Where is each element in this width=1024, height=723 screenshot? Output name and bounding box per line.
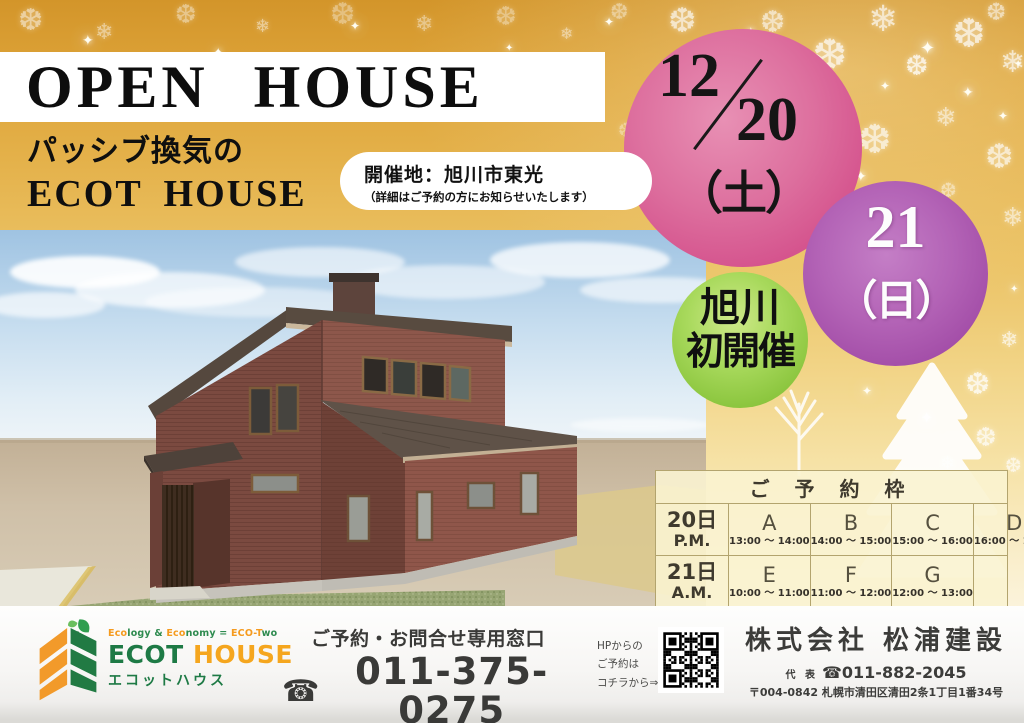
date-weekday: （日） [803, 267, 988, 328]
company-address: 〒004-0842 札幌市清田区清田2条1丁目1番34号 [742, 684, 1010, 700]
snowflake-icon: ❆ [495, 4, 517, 30]
ecot-house-logo-text: Ecology & Economy = ECO-Two ECOT HOUSE エ… [108, 628, 293, 690]
snowflake-icon: ❆ [610, 2, 628, 24]
logo-tagline-segment: = [216, 628, 231, 639]
reservation-day-cell: 20日P.M. [656, 504, 729, 555]
reservation-row: 20日P.M.A13:00 ～ 14:00B14:00 ～ 15:00C15:0… [656, 504, 1007, 555]
slot-letter: C [925, 511, 940, 536]
badge-line2: 初開催 [672, 332, 808, 370]
sparkle-icon: ✦ [962, 86, 974, 100]
reservation-slot-cell: G12:00 ～ 13:00 [892, 556, 974, 607]
hp-note-line3: コチラから⇒ [597, 674, 658, 692]
contact-title: ご予約・お問合せ専用窓口 [282, 624, 574, 651]
sparkle-icon: ✦ [862, 385, 872, 397]
venue-location: 開催地：旭川市東光 [364, 160, 652, 187]
contact-phone-number: 011-375-0275 [329, 653, 574, 723]
slot-time: 15:00 ～ 16:00 [892, 536, 973, 548]
slot-letter: A [762, 511, 776, 536]
sparkle-icon: ✦ [1014, 60, 1022, 70]
sparkle-icon: ✦ [1010, 285, 1018, 295]
snowflake-icon: ❆ [975, 425, 997, 451]
company-block: 株式会社 松浦建設 代 表☎011-882-2045 〒004-0842 札幌市… [742, 620, 1010, 700]
telephone-icon: ☎ [282, 677, 319, 707]
snowflake-icon: ❄ [1000, 330, 1018, 352]
logo-tagline-segment: wo [262, 628, 278, 639]
logo-tagline-segment: Eco [166, 628, 185, 639]
open-house-flyer: ❆❄❆❄❆❄❆❄❆❆❄❆❆❄❆❆❄❆❆❄❆❄❆❆❄❆❄❆❄❄❆❄❆❄❄❆✦✦✦✦… [0, 0, 1024, 723]
qr-code [658, 627, 724, 693]
snowflake-icon: ❆ [858, 120, 892, 160]
slot-time: 14:00 ～ 15:00 [811, 536, 892, 548]
date-day: 20 [736, 85, 798, 156]
venue-note: （詳細はご予約の方にお知らせいたします） [364, 189, 652, 205]
badge-line1: 旭川 [672, 288, 808, 328]
snowflake-icon: ❄ [415, 14, 433, 36]
hp-reservation-note: HPからの ご予約は コチラから⇒ [597, 637, 658, 692]
page-title: OPEN HOUSE [26, 53, 484, 122]
snowflake-icon: ❆ [965, 370, 990, 400]
snowflake-icon: ❄ [255, 18, 270, 36]
period-label: P.M. [674, 532, 711, 550]
contact-block: ご予約・お問合せ専用窓口 ☎ 011-375-0275 [282, 624, 574, 723]
snowflake-icon: ❄ [95, 22, 113, 44]
logo-name-ecot: ECOT [108, 640, 184, 669]
slot-time: 12:00 ～ 13:00 [892, 588, 973, 600]
reservation-slot-cell: D16:00 ～ 17:00 [974, 504, 1024, 555]
logo-tagline: Ecology & Economy = ECO-Two [108, 628, 293, 639]
snowflake-icon: ❆ [986, 0, 1006, 24]
reservation-slot-cell: F11:00 ～ 12:00 [811, 556, 893, 607]
sparkle-icon: ✦ [604, 16, 614, 28]
period-label: A.M. [672, 584, 713, 602]
ecot-house-logo-icon [30, 616, 106, 702]
first-time-badge: 旭川 初開催 [672, 272, 808, 408]
house-rendering [0, 230, 706, 607]
sparkle-icon: ✦ [920, 40, 935, 58]
subtitle-line1: パッシブ換気の [27, 126, 307, 170]
reservation-day-cell: 21日A.M. [656, 556, 729, 607]
snowflake-icon: ❆ [668, 4, 697, 38]
rep-phone-number: ☎011-882-2045 [822, 663, 967, 682]
slot-time: 13:00 ～ 14:00 [729, 536, 810, 548]
logo-tagline-segment: Eco [108, 628, 127, 639]
logo-tagline-segment: ECO-T [231, 628, 262, 639]
snowflake-icon: ❄ [868, 2, 898, 38]
leaf-icon [78, 619, 89, 632]
reservation-slot-cell [974, 556, 1007, 607]
company-rep-phone: 代 表☎011-882-2045 [742, 663, 1010, 682]
snowflake-icon: ❆ [985, 140, 1014, 174]
snowflake-icon: ❆ [330, 0, 355, 30]
rep-label: 代 表 [785, 670, 817, 681]
slot-letter: B [844, 511, 858, 536]
snowflake-icon: ❄ [1002, 205, 1024, 231]
subtitle-line2: ECOT HOUSE [27, 172, 307, 216]
sparkle-icon: ✦ [998, 110, 1008, 122]
logo-tagline-segment: nomy [186, 628, 216, 639]
day-label: 21日 [667, 561, 717, 584]
sparkle-icon: ✦ [350, 20, 360, 32]
snowflake-icon: ❄ [560, 26, 573, 42]
footer-bar: Ecology & Economy = ECO-Two ECOT HOUSE エ… [0, 606, 1024, 723]
reservation-title: ご 予 約 枠 [656, 471, 1007, 504]
reservation-slot-cell: C15:00 ～ 16:00 [892, 504, 974, 555]
venue-badge: 開催地：旭川市東光 （詳細はご予約の方にお知らせいたします） [340, 152, 652, 210]
snowflake-icon: ❆ [905, 52, 928, 80]
slot-letter: D [1006, 511, 1022, 536]
slot-time: 11:00 ～ 12:00 [811, 588, 892, 600]
date-month: 12 [658, 41, 720, 112]
snowflake-icon: ❆ [952, 14, 986, 54]
company-name: 株式会社 松浦建設 [742, 620, 1010, 657]
snowflake-icon: ❄ [1000, 48, 1024, 78]
logo-house-cube [40, 628, 97, 700]
date-day: 21 [803, 193, 988, 262]
day-label: 20日 [667, 509, 717, 532]
logo-tagline-segment: logy [127, 628, 151, 639]
reservation-table: ご 予 約 枠 20日P.M.A13:00 ～ 14:00B14:00 ～ 15… [655, 470, 1008, 607]
subtitle-block: パッシブ換気の ECOT HOUSE [27, 126, 307, 216]
logo-name-house: HOUSE [193, 640, 293, 669]
slot-time: 16:00 ～ 17:00 [974, 536, 1024, 548]
slot-time: 10:00 ～ 11:00 [729, 588, 810, 600]
date-circle-sunday: 21 （日） [803, 181, 988, 366]
reservation-slot-cell: A13:00 ～ 14:00 [729, 504, 811, 555]
sparkle-icon: ✦ [920, 410, 933, 426]
logo-kana: エコットハウス [108, 670, 293, 690]
reservation-slot-cell: B14:00 ～ 15:00 [811, 504, 893, 555]
title-band: OPEN HOUSE [0, 52, 605, 122]
logo-name: ECOT HOUSE [108, 640, 293, 669]
slot-letter: G [924, 563, 940, 588]
reservation-row: 21日A.M.E10:00 ～ 11:00F11:00 ～ 12:00G12:0… [656, 555, 1007, 607]
sparkle-icon: ✦ [82, 34, 94, 48]
slot-letter: F [845, 563, 857, 588]
slot-letter: E [763, 563, 776, 588]
reservation-slot-cell: E10:00 ～ 11:00 [729, 556, 811, 607]
sparkle-icon: ✦ [880, 80, 890, 92]
hp-note-line2: ご予約は [597, 655, 658, 673]
reservation-body: 20日P.M.A13:00 ～ 14:00B14:00 ～ 15:00C15:0… [656, 504, 1007, 607]
logo-tagline-segment: & [151, 628, 167, 639]
hp-note-line1: HPからの [597, 637, 658, 655]
snowflake-icon: ❆ [175, 2, 197, 28]
snowflake-icon: ❆ [18, 6, 43, 36]
snowflake-icon: ❄ [935, 105, 957, 131]
